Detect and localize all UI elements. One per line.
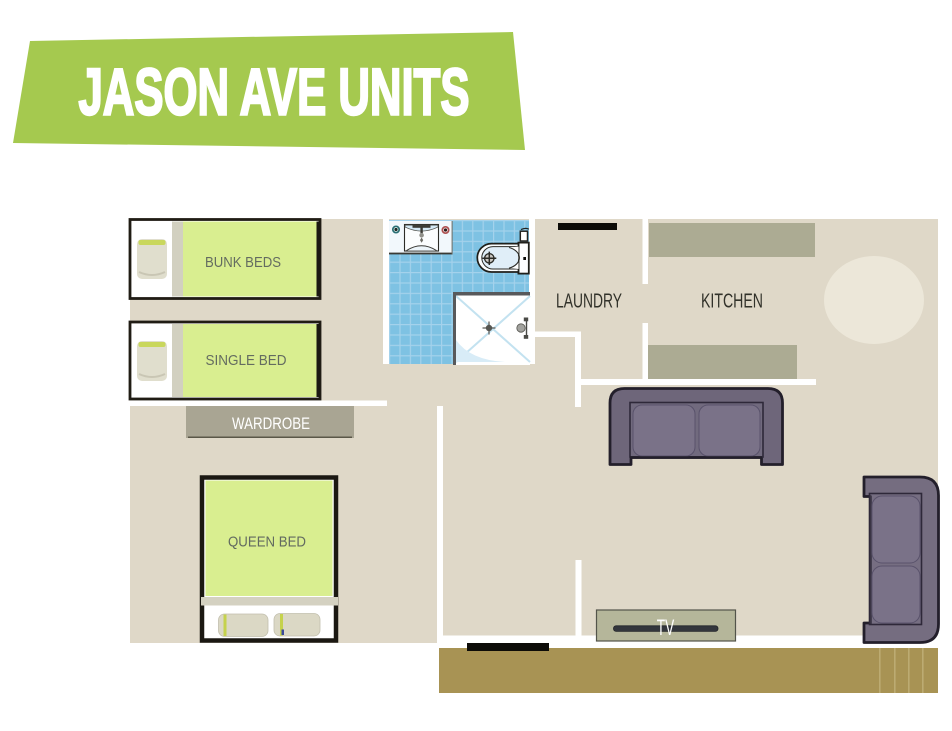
svg-text:KITCHEN: KITCHEN: [701, 291, 763, 313]
svg-text:TV: TV: [657, 615, 675, 640]
svg-text:WARDROBE: WARDROBE: [232, 414, 310, 433]
svg-text:QUEEN BED: QUEEN BED: [228, 533, 306, 550]
svg-text:BUNK BEDS: BUNK BEDS: [205, 254, 281, 271]
svg-text:JASON AVE UNITS: JASON AVE UNITS: [79, 55, 470, 129]
svg-text:SINGLE BED: SINGLE BED: [206, 352, 287, 369]
svg-text:LAUNDRY: LAUNDRY: [556, 291, 622, 313]
